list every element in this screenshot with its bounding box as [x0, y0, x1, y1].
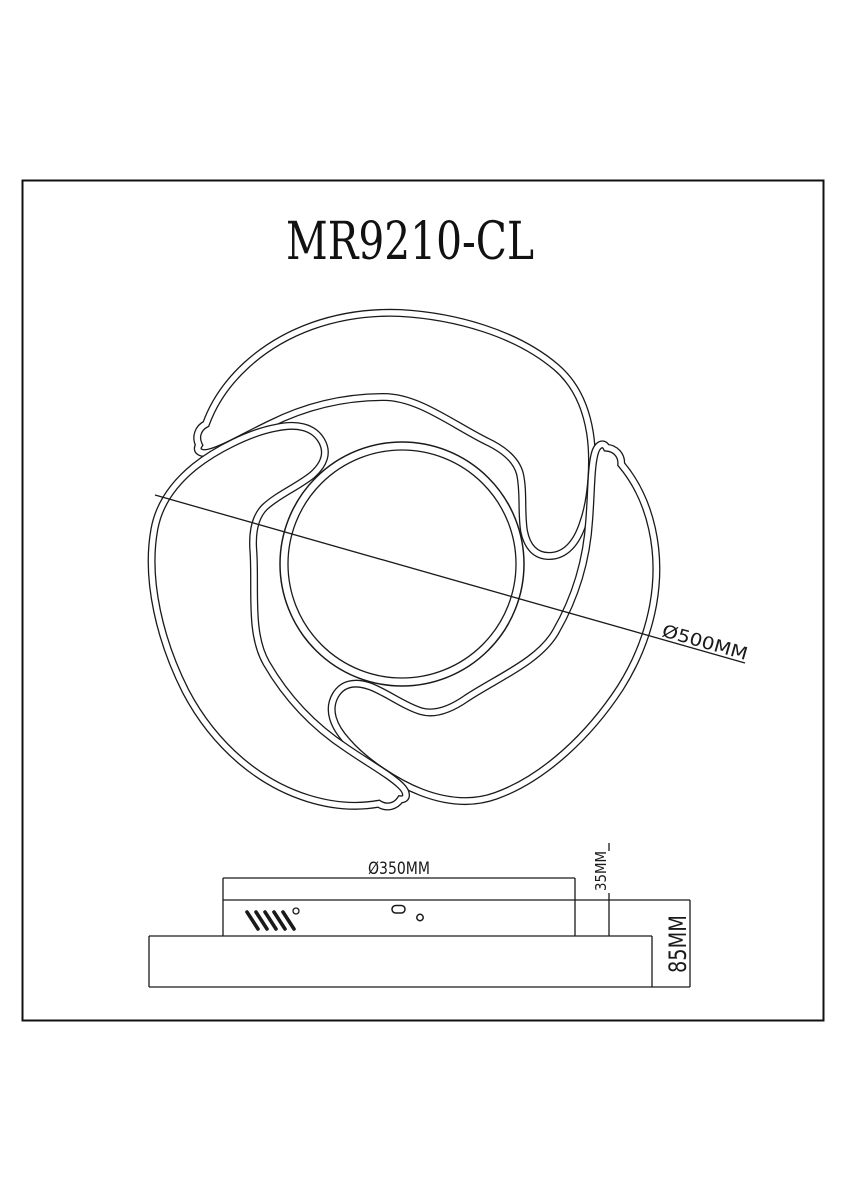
center-ring-inner [288, 450, 516, 678]
technical-drawing-page: MR9210-CL Ø500MM [0, 0, 848, 1200]
drawing-border [23, 181, 824, 1021]
mounting-slot [392, 906, 405, 914]
overall-diameter-label: Ø500MM [660, 622, 750, 665]
spring-symbol [247, 912, 294, 929]
lamp-dimension-drawing: MR9210-CL Ø500MM [0, 0, 848, 1200]
top-view: Ø500MM [89, 313, 749, 867]
base-diameter-label: Ø350MM [368, 859, 430, 879]
spring-terminal-circle [293, 908, 299, 914]
model-number-title: MR9210-CL [286, 212, 534, 272]
mounting-hole [417, 914, 423, 920]
side-view: Ø350MM 35MM 85MM [149, 843, 692, 987]
plate-height-label: 35MM [592, 851, 610, 891]
total-height-label: 85MM [664, 915, 692, 973]
center-ring-outer [280, 442, 524, 686]
